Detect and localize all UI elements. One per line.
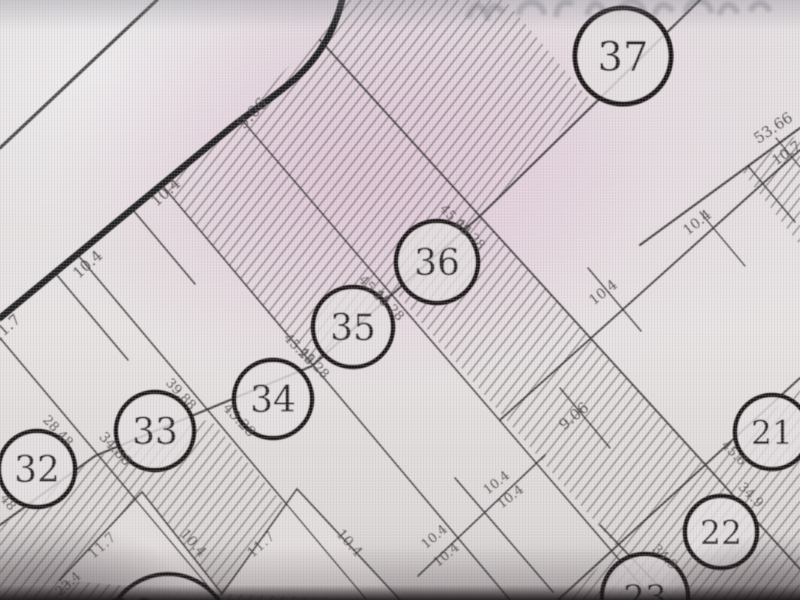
dimension-label: 10.4 — [586, 277, 620, 309]
hatch-regions — [0, 0, 800, 600]
parcel-number-34: 34 — [250, 380, 296, 421]
boundary-line-topleft — [0, 0, 157, 148]
parcel-number-35: 35 — [330, 308, 376, 349]
parcel-number-32: 32 — [14, 450, 60, 491]
road-tick — [133, 210, 195, 284]
boundary-line-mid-right — [500, 150, 800, 420]
parcel-number-23: 23 — [623, 578, 666, 600]
plat-map: 37363534333221222320 9.0610.410.411.753.… — [0, 0, 800, 600]
road-tick — [56, 274, 128, 360]
parcel-number-36: 36 — [414, 243, 460, 284]
parcel-number-37: 37 — [598, 34, 649, 80]
plat-map-photo: 37363534333221222320 9.0610.410.411.753.… — [0, 0, 800, 600]
dimension-label: 10.4 — [69, 246, 106, 282]
parcel-number-20: 20 — [108, 592, 156, 600]
parcel-number-22: 22 — [700, 513, 742, 552]
parcel-number-21: 21 — [751, 413, 793, 452]
parcel-number-33: 33 — [132, 412, 178, 453]
